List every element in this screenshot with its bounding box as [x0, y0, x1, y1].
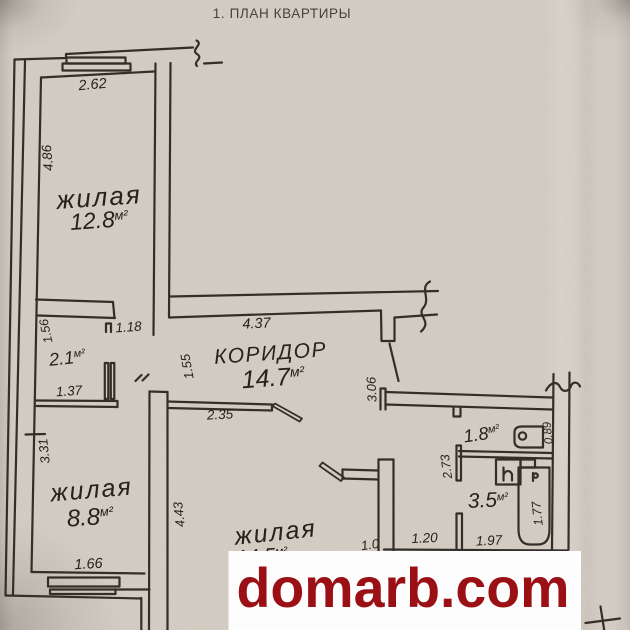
- svg-text:4.86: 4.86: [39, 144, 56, 172]
- svg-text:1.37: 1.37: [55, 383, 83, 400]
- svg-text:4.43: 4.43: [170, 500, 188, 527]
- svg-text:3.06: 3.06: [363, 376, 379, 403]
- svg-text:2.35: 2.35: [205, 406, 234, 422]
- svg-text:domarb.com: domarb.com: [236, 557, 569, 619]
- svg-text:1.77: 1.77: [529, 500, 546, 527]
- svg-text:1.97: 1.97: [475, 532, 503, 548]
- svg-text:3.31: 3.31: [35, 438, 53, 465]
- svg-text:0.89: 0.89: [541, 421, 555, 445]
- svg-text:4.37: 4.37: [242, 315, 272, 332]
- svg-text:1.66: 1.66: [74, 556, 104, 574]
- svg-text:1.18: 1.18: [115, 319, 143, 336]
- svg-text:2.62: 2.62: [77, 76, 108, 94]
- svg-text:1. ПЛАН КВАРТИРЫ: 1. ПЛАН КВАРТИРЫ: [213, 6, 351, 21]
- svg-text:1.20: 1.20: [411, 530, 439, 546]
